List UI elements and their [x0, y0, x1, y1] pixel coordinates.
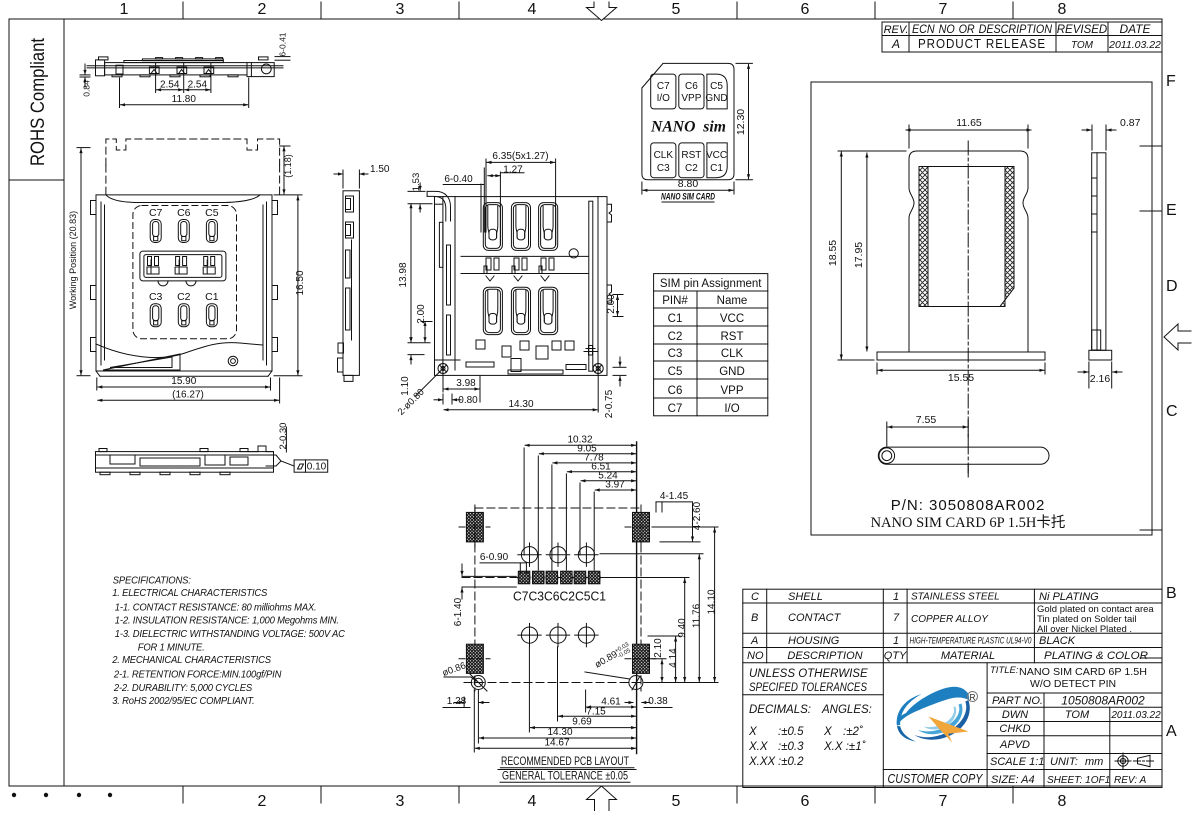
svg-text:7: 7: [939, 793, 948, 810]
svg-text:SCALE 1:1: SCALE 1:1: [990, 756, 1044, 768]
svg-text:11.65: 11.65: [956, 117, 982, 129]
svg-text:2-2. DURABILITY: 5,000 CYCL: 2-2. DURABILITY: 5,000 CYCLES: [113, 682, 253, 694]
svg-text:C6: C6: [668, 385, 683, 397]
svg-text:NANO sim: NANO sim: [650, 119, 726, 136]
svg-text:C6: C6: [177, 207, 191, 219]
svg-text:1.53: 1.53: [411, 173, 422, 192]
svg-text::±0.2: :±0.2: [778, 756, 804, 768]
svg-text:16.50: 16.50: [295, 270, 306, 295]
svg-text:8: 8: [1058, 1, 1067, 18]
svg-text:4: 4: [528, 793, 537, 810]
svg-text:C7C3C6C2C5C1: C7C3C6C2C5C1: [513, 590, 606, 604]
svg-text:DWN: DWN: [1002, 709, 1028, 721]
svg-text:2011.03.22: 2011.03.22: [1110, 710, 1161, 721]
svg-text:GENERAL TOLERANCE ±0.05: GENERAL TOLERANCE ±0.05: [502, 768, 628, 782]
svg-text:3: 3: [396, 1, 405, 18]
svg-text:7: 7: [893, 612, 900, 624]
svg-text:APVD: APVD: [999, 739, 1030, 751]
svg-text:2-0.75: 2-0.75: [604, 389, 615, 418]
svg-text:C5: C5: [710, 81, 723, 92]
svg-text:All over Nickel Plated .: All over Nickel Plated .: [1037, 624, 1132, 635]
svg-text:CHKD: CHKD: [999, 723, 1030, 735]
svg-text:15.55: 15.55: [948, 372, 974, 384]
svg-text:X: X: [748, 726, 758, 738]
svg-text:ECN NO OR DESCRIPTION: ECN NO OR DESCRIPTION: [912, 24, 1053, 36]
svg-text:17.95: 17.95: [853, 242, 865, 268]
svg-text:X.X: X.X: [748, 741, 769, 753]
svg-text:2.54: 2.54: [160, 79, 180, 90]
svg-text:VPP: VPP: [681, 93, 701, 104]
svg-text:6-0.90: 6-0.90: [480, 552, 509, 563]
svg-text:REV: A: REV: A: [1114, 775, 1147, 786]
svg-text:ANGLES:: ANGLES:: [821, 704, 872, 716]
svg-text:I/O: I/O: [724, 403, 739, 415]
svg-text:SPECIFED TOLERANCES: SPECIFED TOLERANCES: [749, 682, 867, 694]
svg-text:0.84: 0.84: [82, 80, 92, 97]
svg-text:4: 4: [528, 1, 537, 18]
svg-text:X.XX: X.XX: [748, 756, 777, 768]
svg-text:1: 1: [120, 1, 129, 18]
svg-text:0.80: 0.80: [458, 395, 478, 406]
svg-text:3.98: 3.98: [456, 378, 476, 389]
svg-text:SIM pin Assignment: SIM pin Assignment: [660, 278, 762, 290]
svg-text:1.50: 1.50: [370, 164, 390, 175]
svg-text:6-0.40: 6-0.40: [444, 174, 473, 185]
svg-text:11.80: 11.80: [172, 94, 197, 105]
svg-text:A: A: [891, 37, 900, 51]
svg-text:1-1. CONTACT RESISTANCE: 80: 1-1. CONTACT RESISTANCE: 80 milliohms MA…: [115, 602, 317, 614]
svg-text:12.30: 12.30: [735, 109, 747, 135]
svg-text:2: 2: [258, 1, 267, 18]
svg-text:2-1. RETENTION FORCE:MIN.100: 2-1. RETENTION FORCE:MIN.100gf/PIN: [113, 669, 282, 681]
svg-text:2.16: 2.16: [1090, 373, 1111, 385]
svg-text:STAINLESS STEEL: STAINLESS STEEL: [911, 592, 1000, 603]
svg-text:UNIT:: UNIT:: [1050, 756, 1078, 768]
svg-text::±2˚: :±2˚: [843, 726, 863, 738]
svg-text:1-3. DIELECTRIC WITHSTANDING: 1-3. DIELECTRIC WITHSTANDING VOLTAGE: 50…: [115, 629, 346, 641]
svg-text:HIGH-TEMPERATURE PLASTIC UL9: HIGH-TEMPERATURE PLASTIC UL94-V0: [910, 636, 1032, 646]
svg-text:0.10: 0.10: [307, 462, 327, 473]
svg-text:6-1.40: 6-1.40: [453, 597, 464, 626]
svg-text:2.00: 2.00: [606, 294, 617, 314]
svg-text:14.10: 14.10: [707, 589, 718, 614]
svg-text:NO: NO: [747, 650, 764, 662]
svg-text:C2: C2: [668, 331, 683, 343]
svg-text:TOM: TOM: [1065, 709, 1090, 721]
svg-text:14.67: 14.67: [544, 737, 569, 748]
svg-text:(16.27): (16.27): [172, 390, 204, 401]
svg-text:7: 7: [939, 1, 948, 18]
svg-text:6.35(5x1.27): 6.35(5x1.27): [492, 151, 548, 162]
svg-text:I/O: I/O: [657, 93, 671, 104]
svg-text:Working Position (20.83): Working Position (20.83): [68, 211, 78, 309]
svg-text:PIN#: PIN#: [662, 295, 688, 307]
svg-text:mm: mm: [1085, 756, 1103, 768]
svg-text:COPPER ALLOY: COPPER ALLOY: [911, 614, 989, 625]
svg-text:C7: C7: [668, 403, 683, 415]
svg-text:13.98: 13.98: [398, 262, 409, 287]
svg-text:QTY: QTY: [884, 650, 907, 662]
svg-text:HOUSING: HOUSING: [788, 635, 840, 647]
svg-text:6: 6: [801, 1, 810, 18]
svg-text:14.30: 14.30: [508, 399, 533, 410]
svg-text:C1: C1: [205, 291, 219, 303]
svg-text:3. RoHS 2002/95/EC COMPLIAN: 3. RoHS 2002/95/EC COMPLIANT.: [112, 696, 254, 708]
svg-text:RST: RST: [721, 331, 744, 343]
svg-text:NANO SIM CARD 6P 1.5H: NANO SIM CARD 6P 1.5H: [1019, 666, 1147, 678]
svg-text:11.76: 11.76: [692, 603, 703, 628]
svg-text:E: E: [1166, 202, 1177, 219]
svg-text:DECIMALS:: DECIMALS:: [749, 704, 811, 716]
svg-text:C3: C3: [149, 291, 163, 303]
svg-text:C2: C2: [177, 291, 191, 303]
svg-text:X.X :±1˚: X.X :±1˚: [823, 741, 866, 753]
svg-text:W/O DETECT PIN: W/O DETECT PIN: [1030, 678, 1116, 690]
svg-text:C7: C7: [657, 81, 670, 92]
svg-text:C5: C5: [205, 207, 219, 219]
svg-text:4-2.60: 4-2.60: [692, 501, 703, 530]
svg-text:A: A: [1166, 723, 1177, 740]
svg-text:1. ELECTRICAL CHARACTERISTICS: 1. ELECTRICAL CHARACTERISTICS: [112, 588, 267, 600]
svg-text:DATE: DATE: [1119, 22, 1151, 36]
svg-text:6-0.41: 6-0.41: [278, 32, 288, 56]
svg-text:4.14: 4.14: [668, 648, 679, 668]
svg-text:NANO SIM CARD: NANO SIM CARD: [661, 192, 715, 203]
svg-text:7.55: 7.55: [916, 414, 937, 426]
svg-text:18.55: 18.55: [827, 240, 839, 266]
svg-text:C1: C1: [710, 163, 723, 174]
svg-text:3.97: 3.97: [605, 480, 625, 491]
svg-text:5: 5: [672, 1, 681, 18]
svg-text:2. MECHANICAL CHARACTERISTIC: 2. MECHANICAL CHARACTERISTICS: [111, 655, 271, 667]
svg-text:GND: GND: [719, 366, 745, 378]
svg-text:VCC: VCC: [720, 313, 744, 325]
svg-text::±0.5: :±0.5: [778, 726, 804, 738]
svg-text:RECOMMENDED PCB LAYOUT: RECOMMENDED PCB LAYOUT: [501, 754, 629, 768]
svg-text:9.40: 9.40: [677, 618, 688, 638]
svg-text:B: B: [1166, 585, 1177, 602]
svg-text:DESCRIPTION: DESCRIPTION: [787, 650, 862, 662]
svg-text:TITLE:: TITLE:: [990, 665, 1019, 676]
svg-text:1050808AR002: 1050808AR002: [1061, 694, 1145, 708]
svg-text:8.80: 8.80: [678, 178, 699, 190]
svg-text:C6: C6: [685, 81, 698, 92]
svg-text:VPP: VPP: [720, 385, 743, 397]
svg-text:6: 6: [801, 793, 810, 810]
svg-text:PART NO.: PART NO.: [992, 695, 1043, 707]
svg-text:2.54: 2.54: [188, 79, 208, 90]
svg-text:CLK: CLK: [721, 348, 744, 360]
svg-text:C7: C7: [149, 207, 163, 219]
svg-text:FOR 1 MINUTE.: FOR 1 MINUTE.: [138, 642, 205, 654]
svg-text:D: D: [1166, 278, 1178, 295]
svg-text:NANO SIM CARD 6P 1.5H卡托: NANO SIM CARD 6P 1.5H卡托: [871, 514, 1066, 531]
svg-text:CLK: CLK: [654, 150, 674, 161]
svg-text:C1: C1: [668, 313, 683, 325]
svg-text:C: C: [1166, 403, 1178, 420]
svg-text:C2: C2: [685, 163, 698, 174]
svg-text:2.00: 2.00: [416, 304, 427, 324]
svg-text:BLACK: BLACK: [1039, 635, 1076, 647]
svg-text:2: 2: [258, 793, 267, 810]
svg-text:0.87: 0.87: [1120, 117, 1141, 129]
svg-text:RST: RST: [681, 150, 701, 161]
svg-text:SHEET: 1OF1: SHEET: 1OF1: [1047, 775, 1110, 786]
svg-text:4-1.45: 4-1.45: [660, 491, 689, 502]
svg-text:VCC: VCC: [706, 150, 727, 161]
svg-text:B: B: [751, 612, 758, 624]
svg-text:8: 8: [1058, 793, 1067, 810]
svg-text:Ni PLATING: Ni PLATING: [1039, 591, 1099, 603]
svg-text:PLATING & COLOR: PLATING & COLOR: [1044, 650, 1148, 662]
svg-text:C5: C5: [668, 366, 683, 378]
svg-text:1: 1: [893, 591, 899, 603]
svg-text:0.38: 0.38: [648, 696, 668, 707]
svg-text:2-0.30: 2-0.30: [278, 423, 289, 450]
svg-text:2.10: 2.10: [653, 638, 664, 658]
svg-text:TOM: TOM: [1071, 40, 1094, 51]
svg-text:SHELL: SHELL: [788, 591, 823, 603]
svg-text:REV.: REV.: [884, 24, 909, 36]
svg-text:2011.03.22: 2011.03.22: [1108, 39, 1161, 51]
svg-text:1.10: 1.10: [400, 376, 411, 396]
svg-text:UNLESS OTHERWISE: UNLESS OTHERWISE: [749, 668, 868, 680]
svg-text:CONTACT: CONTACT: [788, 612, 842, 624]
svg-text:X: X: [823, 726, 833, 738]
svg-text:C: C: [751, 591, 759, 603]
svg-text:A: A: [750, 635, 758, 647]
svg-text:SPECIFICATIONS:: SPECIFICATIONS:: [113, 575, 191, 587]
svg-text:ø0.86: ø0.86: [441, 660, 468, 679]
svg-text::±0.3: :±0.3: [778, 741, 804, 753]
svg-text:1.27: 1.27: [503, 165, 523, 176]
svg-text:(1.18): (1.18): [283, 154, 293, 178]
svg-text:PRODUCT RELEASE: PRODUCT RELEASE: [918, 37, 1046, 51]
svg-text:ROHS Compliant: ROHS Compliant: [28, 37, 49, 166]
svg-text:Name: Name: [717, 295, 748, 307]
svg-text:GND: GND: [705, 93, 727, 104]
svg-text:9.69: 9.69: [572, 717, 592, 728]
svg-text:R: R: [970, 693, 976, 702]
svg-text:3: 3: [396, 793, 405, 810]
svg-text:1: 1: [893, 635, 899, 647]
svg-text:CUSTOMER COPY: CUSTOMER COPY: [888, 772, 984, 786]
svg-text:C3: C3: [657, 163, 670, 174]
svg-text:REVISED: REVISED: [1057, 24, 1108, 36]
svg-text:MATERIAL: MATERIAL: [941, 650, 995, 662]
svg-text:F: F: [1166, 73, 1176, 90]
svg-text:C3: C3: [668, 348, 683, 360]
svg-text:5: 5: [672, 793, 681, 810]
svg-text:SIZE: A4: SIZE: A4: [991, 774, 1035, 786]
svg-text:P/N: 3050808AR002: P/N: 3050808AR002: [891, 497, 1046, 514]
svg-text:15.90: 15.90: [171, 376, 196, 387]
svg-text:1-2. INSULATION RESISTANCE:: 1-2. INSULATION RESISTANCE: 1,000 Megohm…: [115, 615, 339, 627]
